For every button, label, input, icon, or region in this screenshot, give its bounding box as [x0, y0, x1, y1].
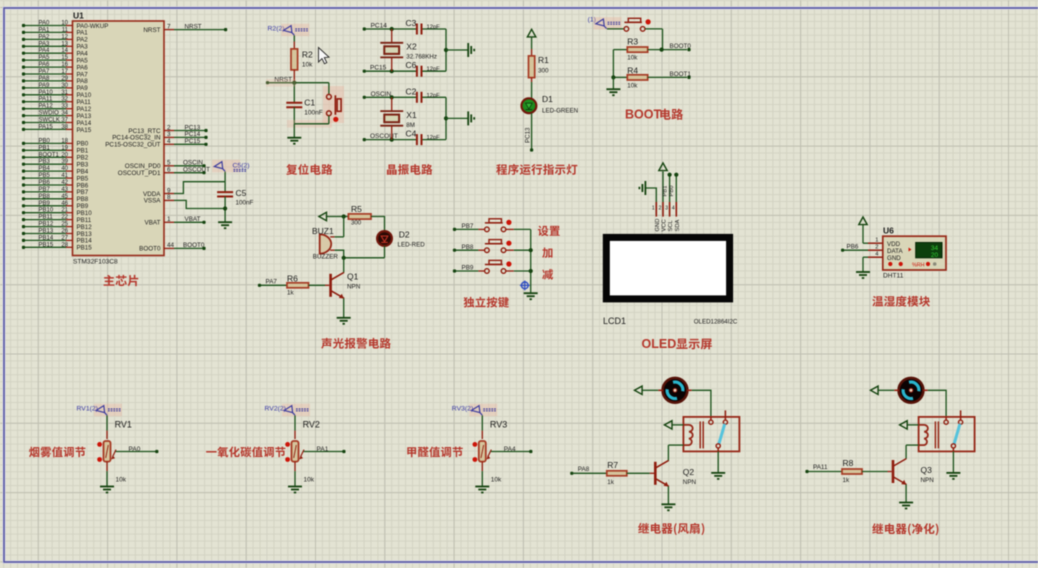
svg-text:1: 1 [875, 238, 878, 244]
svg-text:SDA: SDA [675, 219, 681, 231]
svg-text:C2: C2 [406, 86, 417, 96]
svg-text:RV3: RV3 [490, 420, 507, 430]
svg-text:NPN: NPN [347, 284, 361, 291]
svg-text:6: 6 [167, 167, 171, 174]
svg-text:C1: C1 [304, 98, 315, 108]
svg-text:C5(2): C5(2) [233, 163, 250, 170]
svg-text:BOOT0: BOOT0 [139, 246, 161, 253]
svg-text:PB0: PB0 [669, 186, 675, 197]
svg-text:16: 16 [61, 62, 68, 68]
svg-text:1k: 1k [287, 290, 295, 297]
svg-text:10k: 10k [302, 62, 313, 69]
svg-text:PB6: PB6 [39, 180, 51, 186]
svg-text:20: 20 [61, 152, 68, 158]
svg-text:3: 3 [665, 205, 668, 211]
svg-text:U1: U1 [73, 11, 84, 21]
svg-text:PB1: PB1 [39, 145, 51, 151]
svg-text:R3: R3 [627, 37, 638, 47]
svg-text:40: 40 [61, 166, 68, 172]
svg-text:PB3: PB3 [39, 159, 51, 165]
svg-text:PB8: PB8 [39, 194, 51, 200]
svg-text:29: 29 [61, 76, 68, 82]
svg-text:32: 32 [61, 97, 68, 103]
svg-text:BOOT1: BOOT1 [39, 152, 60, 158]
svg-text:PC14: PC14 [371, 23, 388, 30]
svg-text:PA9: PA9 [39, 83, 51, 89]
svg-text:C4: C4 [406, 129, 417, 139]
svg-text:12pF: 12pF [427, 67, 441, 73]
svg-text:SWCLK: SWCLK [39, 118, 60, 124]
svg-text:PA0: PA0 [129, 446, 141, 453]
svg-text:4: 4 [167, 138, 171, 145]
svg-text:LED-GREEN: LED-GREEN [542, 108, 578, 115]
svg-text:PA4: PA4 [39, 48, 51, 54]
svg-text:PA2: PA2 [39, 34, 51, 40]
svg-text:STM32F103C8: STM32F103C8 [73, 259, 118, 266]
svg-text:PA8: PA8 [39, 76, 51, 82]
svg-text:17: 17 [61, 69, 68, 75]
svg-text:Q1: Q1 [347, 272, 359, 282]
svg-text:D2: D2 [399, 229, 410, 239]
svg-text:45: 45 [61, 194, 68, 200]
svg-text:PA10: PA10 [39, 90, 54, 96]
svg-text:OSCOUT_PD1: OSCOUT_PD1 [118, 170, 161, 177]
svg-text:PB0: PB0 [39, 138, 51, 144]
svg-text:PB1: PB1 [663, 186, 669, 197]
svg-text:R5: R5 [351, 204, 362, 214]
svg-text:15: 15 [61, 55, 68, 61]
svg-text:C3: C3 [406, 18, 417, 28]
svg-text:PB15: PB15 [39, 242, 54, 248]
svg-text:PB11: PB11 [77, 217, 92, 224]
svg-text:U6: U6 [883, 226, 894, 236]
svg-text:PA4: PA4 [504, 446, 516, 453]
svg-text:38: 38 [61, 124, 68, 130]
svg-text:11: 11 [62, 27, 69, 33]
svg-text:PA1: PA1 [77, 30, 89, 37]
svg-text:37: 37 [61, 118, 68, 124]
svg-text:BOOT: BOOT [625, 108, 661, 122]
svg-text:PB8: PB8 [462, 244, 474, 251]
svg-text:1k: 1k [607, 479, 615, 486]
svg-text:44: 44 [167, 242, 175, 249]
svg-text:NPN: NPN [921, 477, 935, 484]
svg-text:R6: R6 [287, 274, 298, 284]
svg-text:10k: 10k [304, 477, 315, 484]
svg-text:PC15: PC15 [185, 138, 201, 145]
svg-text:NRST: NRST [185, 23, 202, 30]
svg-text:20: 20 [931, 252, 939, 259]
svg-text:LCD1: LCD1 [603, 316, 626, 326]
svg-text:PA11: PA11 [39, 97, 53, 103]
svg-text:42: 42 [61, 180, 68, 186]
svg-text:PA0: PA0 [39, 21, 51, 27]
svg-text:PA8: PA8 [578, 466, 590, 473]
svg-text:10k: 10k [116, 477, 127, 484]
svg-text:PA15: PA15 [39, 124, 54, 130]
svg-text:31: 31 [61, 90, 68, 96]
svg-text:VCC: VCC [662, 219, 668, 231]
svg-text:10k: 10k [491, 477, 502, 484]
svg-text:C6: C6 [406, 60, 417, 70]
svg-text:PB9: PB9 [462, 265, 474, 272]
svg-text:NRST: NRST [143, 27, 160, 34]
svg-text:OLED: OLED [642, 337, 677, 351]
svg-text:PB1: PB1 [77, 148, 89, 155]
svg-text:%RH: %RH [912, 263, 925, 269]
svg-text:OSCIN: OSCIN [371, 91, 392, 98]
svg-text:PB8: PB8 [77, 196, 89, 203]
svg-text:43: 43 [61, 187, 68, 193]
svg-text:R4: R4 [627, 66, 638, 76]
svg-text:1k: 1k [843, 477, 851, 484]
svg-text:BUZ1: BUZ1 [312, 226, 334, 236]
svg-text:PA7: PA7 [266, 279, 278, 286]
svg-text:DHT11: DHT11 [883, 273, 904, 280]
svg-text:10k: 10k [627, 55, 638, 62]
svg-text:C5: C5 [236, 188, 247, 198]
svg-text:PB4: PB4 [39, 166, 51, 172]
svg-text:PA11: PA11 [77, 99, 92, 106]
svg-text:X2: X2 [406, 42, 417, 52]
svg-text:PA1: PA1 [317, 446, 329, 453]
svg-text:GND: GND [655, 219, 661, 232]
svg-text:PA5: PA5 [77, 57, 89, 64]
svg-text:PB7: PB7 [39, 187, 51, 193]
svg-text:PA12: PA12 [39, 104, 54, 110]
svg-text:LED-RED: LED-RED [398, 242, 426, 249]
svg-text:10k: 10k [627, 82, 638, 89]
svg-text:PB15: PB15 [77, 245, 93, 252]
svg-text:BOOT1: BOOT1 [670, 71, 692, 78]
svg-text:VBAT: VBAT [145, 220, 161, 227]
svg-text:PA6: PA6 [39, 62, 51, 68]
svg-text:GND: GND [887, 255, 901, 262]
svg-text:34: 34 [61, 111, 68, 117]
svg-text:14: 14 [61, 48, 68, 54]
svg-text:BOOT0: BOOT0 [183, 242, 205, 249]
svg-text:PB6: PB6 [847, 244, 859, 251]
svg-text:Q2: Q2 [683, 467, 695, 477]
svg-text:300: 300 [538, 68, 549, 75]
svg-text:2: 2 [659, 205, 662, 211]
svg-text:1: 1 [652, 205, 655, 211]
svg-text:PA1: PA1 [39, 27, 51, 33]
svg-text:RV1(2): RV1(2) [77, 406, 98, 413]
svg-text:R8: R8 [843, 458, 854, 468]
svg-text:PB14: PB14 [77, 238, 93, 245]
svg-text:R7: R7 [607, 460, 618, 470]
svg-text:21: 21 [61, 208, 68, 214]
svg-text:PB13: PB13 [39, 229, 54, 235]
svg-text:PB14: PB14 [39, 235, 54, 241]
svg-text:BUZZER: BUZZER [313, 253, 339, 260]
svg-text:PC15-OSC32_OUT: PC15-OSC32_OUT [105, 142, 160, 149]
svg-text:33: 33 [61, 104, 68, 110]
svg-text:39: 39 [61, 159, 68, 165]
svg-text:SWDIO: SWDIO [39, 111, 60, 117]
svg-text:300: 300 [351, 220, 362, 227]
svg-text:BOOT0: BOOT0 [670, 43, 692, 50]
svg-text:PB10: PB10 [39, 208, 54, 214]
svg-text:13: 13 [61, 41, 68, 47]
svg-text:PA15: PA15 [77, 127, 92, 134]
svg-text:PB5: PB5 [39, 173, 51, 179]
svg-text:DATA: DATA [887, 248, 903, 255]
svg-text:41: 41 [61, 173, 68, 179]
svg-text:PB12: PB12 [39, 222, 54, 228]
svg-text:46: 46 [61, 201, 68, 207]
svg-text:PA7: PA7 [39, 69, 51, 75]
svg-text:12pF: 12pF [427, 93, 441, 99]
svg-text:SCL: SCL [668, 219, 674, 231]
svg-text:VBAT: VBAT [185, 216, 201, 223]
svg-text:25: 25 [61, 222, 68, 228]
svg-text:Q3: Q3 [921, 465, 933, 475]
svg-text:R1: R1 [538, 55, 549, 65]
svg-text:VSSA: VSSA [144, 198, 162, 205]
svg-text:RV3(2): RV3(2) [452, 406, 473, 413]
svg-text:RV1: RV1 [115, 420, 132, 430]
svg-text:18: 18 [61, 138, 68, 144]
svg-text:12: 12 [61, 34, 68, 40]
svg-text:VDD: VDD [887, 241, 901, 248]
svg-text:12pF: 12pF [427, 135, 441, 141]
svg-text:22: 22 [61, 215, 68, 221]
svg-text:PA5: PA5 [39, 55, 51, 61]
svg-text:X1: X1 [406, 110, 417, 120]
svg-text:1: 1 [167, 216, 171, 223]
svg-text:PB7: PB7 [462, 223, 474, 230]
svg-text:100nF: 100nF [304, 110, 322, 117]
svg-text:PA8: PA8 [77, 78, 89, 85]
svg-text:28: 28 [61, 242, 68, 248]
svg-text:8M: 8M [406, 122, 415, 129]
svg-text:30: 30 [61, 83, 68, 89]
svg-text:RV2: RV2 [303, 420, 320, 430]
svg-text:19: 19 [61, 145, 68, 151]
svg-text:7: 7 [167, 23, 171, 30]
svg-text:4: 4 [672, 205, 675, 211]
svg-text:NPN: NPN [683, 479, 697, 486]
svg-text:32.768KHz: 32.768KHz [406, 54, 437, 61]
svg-text:PA3: PA3 [39, 41, 51, 47]
svg-text:27: 27 [61, 235, 68, 241]
svg-text:PA11: PA11 [813, 464, 828, 471]
svg-text:PB9: PB9 [39, 201, 51, 207]
svg-text:OSCOUT: OSCOUT [370, 133, 398, 140]
svg-text:R2: R2 [302, 50, 313, 60]
svg-text:PC15: PC15 [370, 65, 387, 72]
svg-text:D1: D1 [542, 94, 553, 104]
svg-text:PB11: PB11 [39, 215, 54, 221]
svg-text:PC13: PC13 [525, 127, 532, 143]
svg-text:26: 26 [61, 229, 68, 235]
svg-text:PB4: PB4 [77, 168, 89, 175]
svg-text:100nF: 100nF [236, 200, 254, 207]
svg-text:2: 2 [875, 245, 878, 251]
svg-text:12pF: 12pF [427, 25, 441, 31]
svg-text:OSCOUT: OSCOUT [183, 167, 210, 174]
svg-text:OLED12864I2C: OLED12864I2C [694, 319, 738, 326]
svg-text:PA14: PA14 [77, 120, 92, 127]
svg-text:10: 10 [61, 21, 68, 27]
svg-text:RV2(2): RV2(2) [265, 406, 286, 413]
